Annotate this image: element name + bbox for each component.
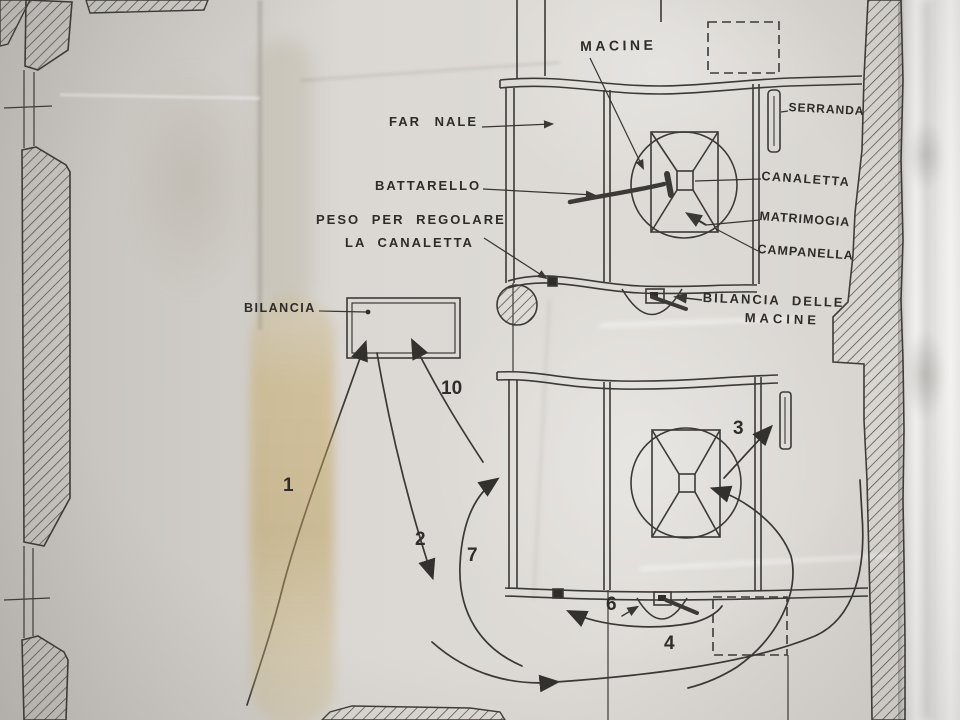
funnel-line xyxy=(651,132,677,171)
leader-dot xyxy=(366,310,371,315)
label-peso-line1: PESO PER REGOLARE xyxy=(316,212,506,227)
wall-segment xyxy=(322,706,505,720)
wall-segment xyxy=(22,147,70,546)
wall-segment xyxy=(22,636,68,720)
flow-number-7: 7 xyxy=(467,545,478,567)
funnel-line xyxy=(652,492,679,537)
flow-arrow-1 xyxy=(247,344,365,705)
leader-campanella xyxy=(716,229,758,251)
leader-battarello xyxy=(483,189,594,195)
peso-weight-mark xyxy=(548,277,557,286)
label-farnale: FAR NALE xyxy=(389,114,478,129)
battarello-rod xyxy=(570,184,664,202)
hatched-sack-circle xyxy=(497,285,537,325)
leader-bilancia-macine xyxy=(676,297,702,300)
dashed-hopper-box xyxy=(708,22,779,73)
wall-segment xyxy=(86,0,208,13)
middle-devices xyxy=(347,285,686,358)
leader-peso xyxy=(484,238,546,278)
funnel-line xyxy=(652,430,679,474)
flow-arrow-10 xyxy=(413,342,483,462)
scale-semicircle xyxy=(637,598,687,619)
left-wall xyxy=(4,0,72,720)
battarello-head xyxy=(667,174,671,195)
flow-arrow-6-tick xyxy=(622,607,637,616)
photo-of-mill-diagram: MACINE FAR NALE BATTARELLO PESO PER REGO… xyxy=(0,0,960,720)
leader-canaletta xyxy=(695,179,761,181)
top-band xyxy=(500,76,862,86)
millstone-circle xyxy=(631,132,737,238)
peso-weight-mark xyxy=(553,589,563,598)
label-macine: MACINE xyxy=(580,37,657,54)
label-peso-line2: LA CANALETTA xyxy=(345,235,474,250)
bottom-wall xyxy=(322,706,505,720)
funnel-line xyxy=(695,430,720,474)
scale-lever xyxy=(666,600,697,613)
leader-matrimogia xyxy=(706,220,760,225)
leader-matrimogia-arrow xyxy=(688,214,706,225)
funnel-line xyxy=(695,492,720,537)
flow-number-4: 4 xyxy=(664,633,675,655)
funnel-line xyxy=(693,132,718,171)
flow-arrow-3 xyxy=(724,428,770,478)
lower-mill-enclosure xyxy=(497,372,868,720)
flow-number-6: 6 xyxy=(606,594,617,616)
label-bilancia: BILANCIA xyxy=(244,301,316,315)
label-bilancia-delle-macine-line2: MACINE xyxy=(744,310,820,328)
millstone-circle xyxy=(631,428,741,538)
wall-segment xyxy=(25,0,72,70)
flow-arrow-6 xyxy=(570,606,722,627)
flow-arrow-4b xyxy=(556,480,863,682)
millstone-eye xyxy=(679,474,695,492)
flow-number-2: 2 xyxy=(415,529,426,551)
leader-macine xyxy=(590,58,643,168)
label-battarello: BATTARELLO xyxy=(375,178,481,193)
flow-number-1: 1 xyxy=(283,475,294,497)
flow-arrow-7 xyxy=(460,480,522,666)
millstone-eye xyxy=(677,171,693,190)
flow-number-3: 3 xyxy=(733,418,744,440)
flow-arrows xyxy=(247,342,863,705)
leader-serranda xyxy=(781,111,788,112)
flow-number-10: 10 xyxy=(441,378,462,400)
leader-bilancia xyxy=(319,311,366,312)
top-band xyxy=(497,372,778,381)
leader-farnale xyxy=(482,124,552,127)
